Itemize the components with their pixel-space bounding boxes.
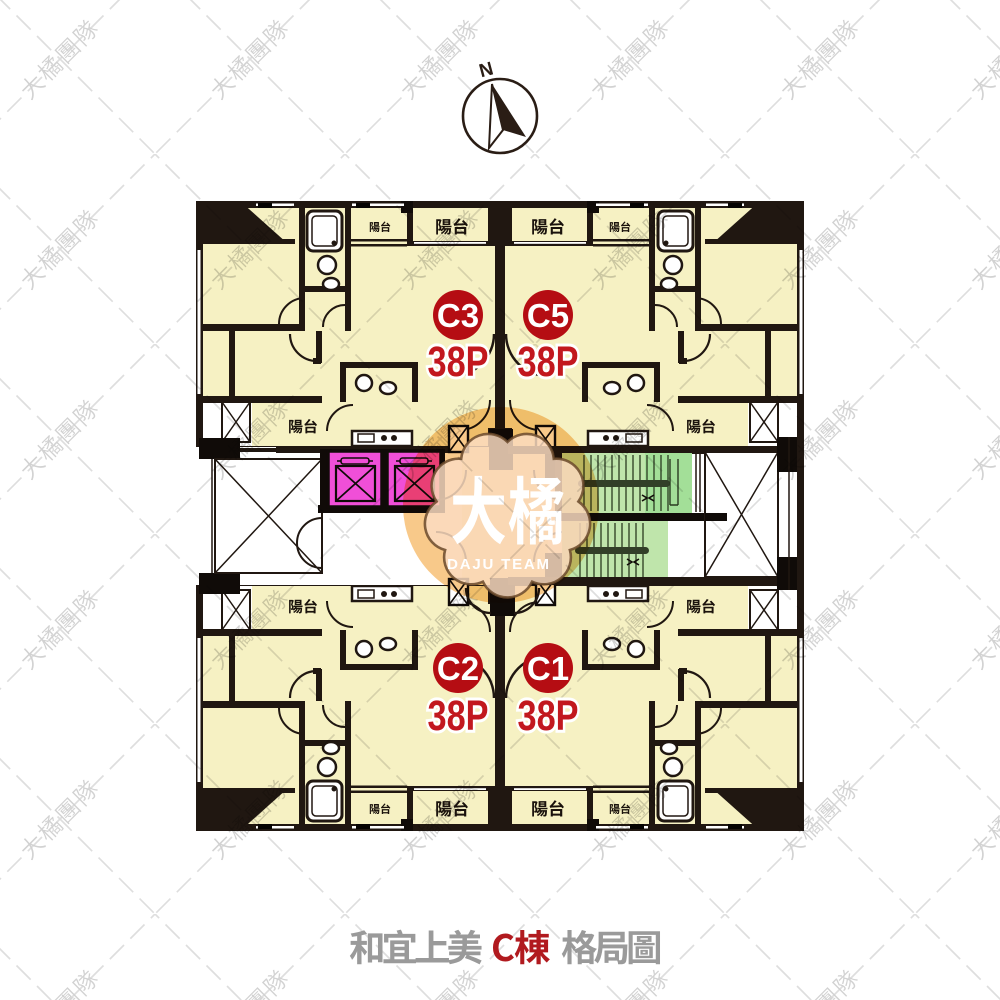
svg-text:38P: 38P xyxy=(518,338,579,386)
svg-text:38P: 38P xyxy=(428,692,489,740)
svg-text:38P: 38P xyxy=(428,338,489,386)
svg-text:C3: C3 xyxy=(437,297,479,334)
svg-text:C1: C1 xyxy=(527,650,569,687)
svg-text:38P: 38P xyxy=(518,692,579,740)
svg-text:C5: C5 xyxy=(527,297,569,334)
svg-text:C2: C2 xyxy=(437,650,479,687)
